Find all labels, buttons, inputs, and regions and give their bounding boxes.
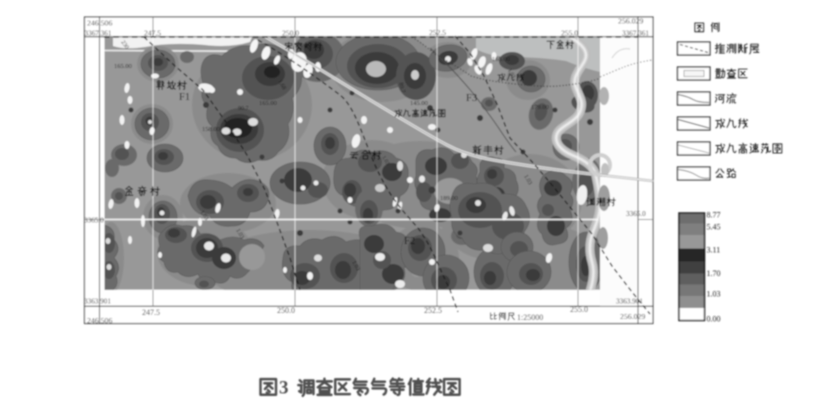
svg-text:256.029: 256.029 bbox=[620, 312, 645, 321]
svg-text:247.5: 247.5 bbox=[142, 308, 160, 317]
svg-text:246.506: 246.506 bbox=[87, 316, 112, 325]
svg-text:1.70: 1.70 bbox=[707, 269, 721, 278]
svg-text:F2: F2 bbox=[404, 236, 415, 247]
svg-text:246.506: 246.506 bbox=[87, 19, 112, 28]
svg-text:5.45: 5.45 bbox=[707, 223, 721, 232]
svg-text:252.5: 252.5 bbox=[424, 306, 442, 315]
svg-text:145.00: 145.00 bbox=[410, 100, 428, 107]
svg-text:3: 3 bbox=[279, 378, 289, 399]
svg-text:250.0: 250.0 bbox=[277, 306, 295, 315]
svg-text:3365.0: 3365.0 bbox=[626, 210, 646, 218]
svg-text:3363.901: 3363.901 bbox=[616, 298, 643, 306]
svg-text:158.00: 158.00 bbox=[202, 126, 220, 133]
svg-text:0.00: 0.00 bbox=[707, 315, 721, 324]
svg-text:252.5: 252.5 bbox=[429, 28, 446, 37]
svg-text:3365.0: 3365.0 bbox=[84, 217, 104, 225]
svg-text:165.00: 165.00 bbox=[259, 100, 277, 107]
svg-text:256.029: 256.029 bbox=[618, 17, 643, 26]
svg-text:90.7: 90.7 bbox=[238, 106, 249, 112]
svg-text:1.03: 1.03 bbox=[707, 290, 721, 299]
svg-text:F1: F1 bbox=[179, 92, 190, 103]
svg-text:3367.361: 3367.361 bbox=[85, 30, 112, 38]
svg-text:255.0: 255.0 bbox=[570, 305, 588, 314]
svg-text:3367.361: 3367.361 bbox=[622, 30, 649, 38]
svg-text:189.00: 189.00 bbox=[440, 195, 458, 202]
svg-text:255.0: 255.0 bbox=[561, 28, 578, 37]
svg-text:F3: F3 bbox=[466, 93, 477, 104]
svg-text:3363.901: 3363.901 bbox=[84, 298, 111, 306]
svg-text:165.00: 165.00 bbox=[114, 63, 132, 70]
svg-text:247.5: 247.5 bbox=[144, 28, 161, 37]
svg-text:1:25000: 1:25000 bbox=[517, 313, 543, 322]
svg-text:165.00: 165.00 bbox=[492, 56, 510, 63]
svg-text:8.77: 8.77 bbox=[707, 211, 721, 220]
svg-text:179.00: 179.00 bbox=[531, 104, 549, 111]
svg-text:250.0: 250.0 bbox=[282, 28, 299, 37]
svg-text:3.11: 3.11 bbox=[707, 246, 721, 255]
